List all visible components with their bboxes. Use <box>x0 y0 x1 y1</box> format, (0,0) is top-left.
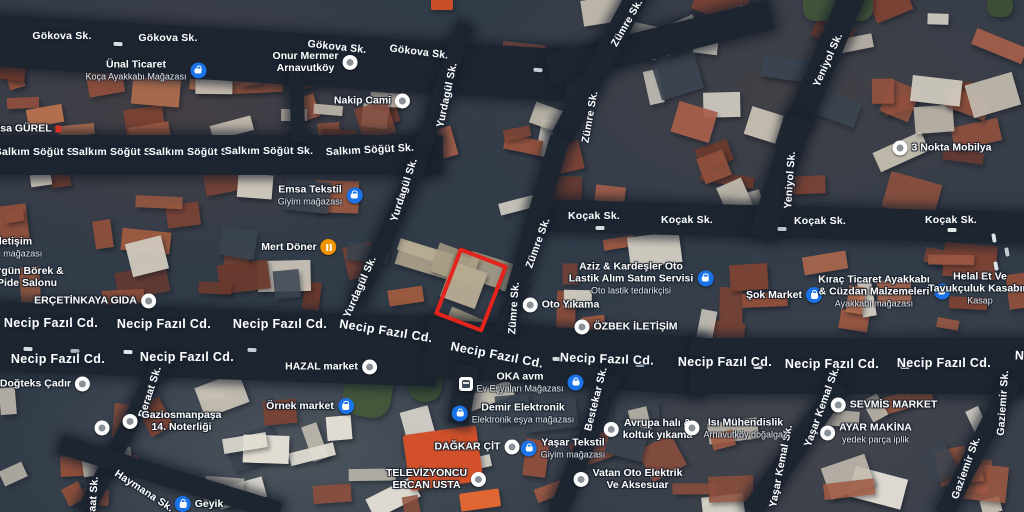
poi-text: Avrupa halı &koltuk yıkama <box>623 417 692 441</box>
engineering-icon <box>684 421 699 436</box>
poi-label[interactable]: Nakip Cami <box>334 94 410 109</box>
poi-text: AYAR MAKİNAyedek parça iplik <box>839 421 912 444</box>
poi-icon-glyph <box>145 298 152 305</box>
poi-category: Oto lastik tedarikçisi <box>591 286 671 296</box>
street-label: Necip Fazıl Cd. <box>117 317 211 331</box>
poi-name: Ve Aksesuar <box>606 479 668 491</box>
poi-label[interactable]: Mert Döner <box>261 239 336 255</box>
poi-name: Yaşar Tekstil <box>541 436 604 448</box>
roof-block <box>131 77 181 108</box>
street-label: Koçak Sk. <box>925 214 977 226</box>
car <box>23 347 32 351</box>
street-label: Necip Fazıl Cd. <box>233 317 327 331</box>
grocery-icon-glyph <box>366 364 373 371</box>
cleaning-icon <box>604 422 619 437</box>
notary-icon-glyph <box>127 418 134 425</box>
poi-name: Tavukçuluk Kasabım <box>928 283 1024 295</box>
poi-icon-glyph <box>79 381 86 388</box>
car <box>777 227 786 231</box>
poi-name: Ergün Börek & <box>0 265 64 277</box>
poi-label[interactable]: Doğteks Çadır <box>0 377 90 392</box>
poi-name: Şok Market <box>746 289 802 301</box>
car <box>113 42 122 46</box>
poi-name: Lastik Alım Satım Servisi <box>569 273 694 285</box>
poi-name: Oto Yıkama <box>542 299 600 311</box>
poi-name: Isı Mühendislik <box>708 416 783 428</box>
poi-name: OKA avm <box>497 370 544 382</box>
engineering-icon-glyph <box>688 425 695 432</box>
phone-shop-icon <box>575 320 590 335</box>
grocery-icon <box>362 360 377 375</box>
poi-label[interactable]: Örnek market <box>266 398 354 414</box>
shopping-bag-icon-glyph <box>702 276 709 282</box>
cart-icon <box>831 398 846 413</box>
roof-block <box>326 415 353 441</box>
poi-label[interactable]: OKA avmEv Eşyaları Mağazası <box>476 370 583 393</box>
bus-station-icon <box>459 377 473 391</box>
poi-label[interactable]: Demir ElektronikElektronik eşya mağazası <box>452 401 575 424</box>
poi-name: Vatan Oto Elektrik <box>593 467 683 479</box>
poi-icon <box>820 426 835 441</box>
street-label: Koçak Sk. <box>568 210 620 222</box>
street-label: Gökova Sk. <box>138 32 197 44</box>
roof-block <box>401 495 420 512</box>
poi-label[interactable]: Şok Market <box>746 287 822 303</box>
poi-name: TELEVİZYONCU <box>386 467 467 479</box>
roof-block <box>136 195 183 209</box>
poi-label[interactable]: Emsa TekstilGiyim mağazası <box>278 183 363 206</box>
poi-name: Arnavutköy <box>277 62 335 74</box>
poi-category: Giyim mağazası <box>541 450 606 460</box>
poi-label[interactable]: Aziz & Kardeşler OtoLastik Alım Satım Se… <box>569 260 714 295</box>
poi-name: Geyik <box>195 498 224 510</box>
poi-text: Yaşar TekstilGiyim mağazası <box>541 436 606 459</box>
cart-icon <box>338 398 354 414</box>
poi-category: Koça Ayakkabı Mağazası <box>86 72 187 82</box>
poi-name: İletişim <box>0 235 32 247</box>
poi-icon <box>95 421 110 436</box>
poi-text: İletişimonu mağazası <box>0 235 42 258</box>
poi-name: Kıraç Ticaret Ayakkabı <box>818 273 930 285</box>
poi-name: Demir Elektronik <box>481 401 564 413</box>
poi-label[interactable]: Oto Yıkama <box>523 298 600 313</box>
poi-text: Isa GÜREL <box>0 123 52 135</box>
poi-icon-glyph <box>508 444 515 451</box>
shopping-bag-icon <box>697 270 713 286</box>
shopping-bag-icon <box>452 405 468 421</box>
poi-text: ÖZBEK İLETİŞİM <box>594 321 678 333</box>
poi-label[interactable]: ÖZBEK İLETİŞİM <box>575 320 678 335</box>
bus-station-icon-glyph <box>462 380 470 388</box>
poi-name: Mert Döner <box>261 241 316 253</box>
poi-name: ERÇETİNKAYA GIDA <box>34 295 137 307</box>
cart-icon-glyph <box>835 402 842 409</box>
poi-name: koltuk yıkama <box>623 429 692 441</box>
car <box>247 348 256 352</box>
mosque-icon <box>395 94 410 109</box>
car-wash-icon-glyph <box>527 302 534 309</box>
mosque-icon-glyph <box>399 98 406 105</box>
street-label: Salkım Söğüt Sk. <box>72 146 160 158</box>
street-label: Necip Fazıl Cd. <box>11 352 105 366</box>
poi-label[interactable]: ERÇETİNKAYA GIDA <box>34 294 156 309</box>
poi-label[interactable] <box>95 421 110 436</box>
poi-label[interactable]: AYAR MAKİNAyedek parça iplik <box>820 421 912 444</box>
shopping-bag-icon-glyph <box>456 411 463 417</box>
poi-label[interactable]: Yaşar TekstilGiyim mağazası <box>521 436 606 459</box>
poi-label[interactable]: HAZAL market <box>285 360 377 375</box>
street-label: Koçak Sk. <box>661 214 713 226</box>
street-label: Salkım Söğüt Sk. <box>225 145 313 157</box>
roof-block <box>236 173 273 199</box>
poi-text: Kıraç Ticaret Ayakkabı& Cüzdan Malzemele… <box>818 273 930 308</box>
poi-text: Örnek market <box>266 400 334 412</box>
poi-text: Oto Yıkama <box>542 299 600 311</box>
poi-category: onu mağazası <box>0 249 42 259</box>
street-label: Necip Fazıl Cd. <box>4 316 98 330</box>
poi-category: Giyim mağazası <box>278 197 343 207</box>
poi-name: AYAR MAKİNA <box>839 421 912 433</box>
poi-icon <box>893 141 908 156</box>
poi-label[interactable]: Gaziosmanpaşa14. Noterliği <box>123 409 222 433</box>
poi-name: Emsa Tekstil <box>278 183 341 195</box>
poi-icon-glyph <box>99 425 106 432</box>
street-label: Necip Fazıl Cd. <box>140 350 234 364</box>
poi-name: Örnek market <box>266 400 334 412</box>
red-marker-icon <box>56 126 62 133</box>
roof-block <box>218 226 258 261</box>
poi-text: Emsa TekstilGiyim mağazası <box>278 183 343 206</box>
poi-text: DAĞKAR ÇİT <box>435 441 501 453</box>
restaurant-icon-glyph <box>326 244 328 251</box>
poi-category: Kasap <box>967 296 993 306</box>
poi-category: Ayakkabı mağazası <box>835 299 913 309</box>
street-label: Beraat Sk. <box>85 476 101 512</box>
poi-icon-glyph <box>897 145 904 152</box>
poi-name: Helal Et Ve <box>953 270 1007 282</box>
poi-text: Aziz & Kardeşler OtoLastik Alım Satım Se… <box>569 260 694 295</box>
poi-text: HAZAL market <box>285 361 358 373</box>
poi-label[interactable]: Avrupa halı &koltuk yıkama <box>604 417 692 441</box>
poi-label[interactable]: Ergün Börek &Pide Salonu <box>0 265 64 289</box>
poi-text: 3 Nokta Mobilya <box>912 142 992 154</box>
poi-text: Helal Et VeTavukçuluk KasabımKasap <box>928 270 1024 305</box>
poi-category: Ev Eşyaları Mağazası <box>476 384 563 394</box>
shopping-bag-icon <box>521 440 537 456</box>
shopping-bag-icon-glyph <box>572 380 579 386</box>
poi-name: ERCAN USTA <box>392 479 460 491</box>
poi-icon-glyph <box>346 59 353 66</box>
roof-block <box>7 97 39 109</box>
shopping-bag-icon-glyph <box>351 193 358 199</box>
poi-name: Ünal Ticaret <box>106 58 166 70</box>
phone-shop-icon-glyph <box>579 324 586 331</box>
poi-label[interactable]: DAĞKAR ÇİT <box>435 440 520 455</box>
cleaning-icon-glyph <box>608 426 615 433</box>
shopping-bag-icon-glyph <box>525 446 532 452</box>
street-label: Salkım Söğüt Sk. <box>0 146 83 158</box>
street-label: Gökova Sk. <box>32 30 91 42</box>
poi-text: SEVMİS MARKET <box>850 399 938 411</box>
poi-text: Onur MermerArnavutköy <box>273 50 339 74</box>
poi-name: Nakip Cami <box>334 95 391 107</box>
poi-text: Geyik <box>195 498 224 510</box>
shopping-bag-icon <box>346 187 362 203</box>
poi-icon-glyph <box>824 430 831 437</box>
auto-parts-icon <box>574 472 589 487</box>
poi-name: Gaziosmanpaşa <box>142 409 222 421</box>
poi-label[interactable]: 3 Nokta Mobilya <box>893 141 992 156</box>
car-wash-icon <box>523 298 538 313</box>
poi-text: Nakip Cami <box>334 95 391 107</box>
tree-canopy <box>987 0 1013 17</box>
shopping-bag-icon-glyph <box>195 68 202 74</box>
poi-name: Doğteks Çadır <box>0 378 71 390</box>
poi-name: Onur Mermer <box>273 50 339 62</box>
poi-label[interactable]: Ünal TicaretKoça Ayakkabı Mağazası <box>86 58 207 81</box>
roof-block <box>313 484 352 505</box>
roof-block <box>928 254 974 265</box>
poi-label[interactable]: Onur MermerArnavutköy <box>273 50 358 74</box>
shopping-bag-icon <box>568 374 584 390</box>
cart-icon-glyph <box>811 293 818 299</box>
poi-label[interactable]: TELEVİZYONCUERCAN USTA <box>386 467 486 491</box>
street-label: Koçak Sk. <box>794 215 846 227</box>
roof-block <box>92 220 114 250</box>
poi-name: SEVMİS MARKET <box>850 399 938 411</box>
building-roof <box>431 0 453 10</box>
poi-text: Isı MühendislikArnavutköy doğalgaz <box>703 416 787 439</box>
poi-text: ERÇETİNKAYA GIDA <box>34 295 137 307</box>
shopping-bag-icon-glyph <box>179 502 186 508</box>
car <box>533 68 542 73</box>
poi-icon <box>75 377 90 392</box>
car <box>947 228 956 232</box>
poi-text: Şok Market <box>746 289 802 301</box>
poi-category: Elektronik eşya mağazası <box>472 415 575 425</box>
poi-text: Ünal TicaretKoça Ayakkabı Mağazası <box>86 58 187 81</box>
street-label: Necip Fazıl Cd. <box>897 356 991 370</box>
poi-name: 3 Nokta Mobilya <box>912 142 992 154</box>
notary-icon <box>123 414 138 429</box>
auto-parts-icon-glyph <box>578 476 585 483</box>
roof-block <box>927 14 948 26</box>
poi-name: DAĞKAR ÇİT <box>435 441 501 453</box>
poi-name: & Cüzdan Malzemeleri <box>819 286 930 298</box>
repair-icon <box>471 472 486 487</box>
car <box>123 350 132 354</box>
poi-label[interactable]: Isa GÜREL <box>0 122 62 137</box>
poi-text: Mert Döner <box>261 241 316 253</box>
poi-label[interactable]: SEVMİS MARKET <box>831 398 938 413</box>
poi-label[interactable] <box>459 377 473 391</box>
poi-name: Avrupa halı & <box>624 417 691 429</box>
poi-label[interactable]: İletişimonu mağazası <box>0 235 42 258</box>
poi-text: Gaziosmanpaşa14. Noterliği <box>142 409 222 433</box>
shopping-bag-icon <box>190 62 206 78</box>
poi-text: Ergün Börek &Pide Salonu <box>0 265 64 289</box>
poi-text: OKA avmEv Eşyaları Mağazası <box>476 370 563 393</box>
poi-name: Aziz & Kardeşler Oto <box>579 260 683 272</box>
car <box>595 226 604 230</box>
poi-text: TELEVİZYONCUERCAN USTA <box>386 467 467 491</box>
poi-icon <box>342 55 357 70</box>
poi-name: ÖZBEK İLETİŞİM <box>594 321 678 333</box>
cart-icon-glyph <box>342 404 349 410</box>
restaurant-icon <box>321 239 337 255</box>
repair-icon-glyph <box>475 476 482 483</box>
poi-icon <box>504 440 519 455</box>
poi-category: Arnavutköy doğalgaz <box>703 430 787 440</box>
poi-text: Demir ElektronikElektronik eşya mağazası <box>472 401 575 424</box>
poi-label[interactable]: Vatan Oto ElektrikVe Aksesuar <box>574 467 683 491</box>
poi-text: Vatan Oto ElektrikVe Aksesuar <box>593 467 683 491</box>
poi-label[interactable]: Geyik <box>175 496 224 512</box>
poi-category: yedek parça iplik <box>842 435 909 445</box>
poi-label[interactable]: Isı MühendislikArnavutköy doğalgaz <box>684 416 787 439</box>
poi-name: HAZAL market <box>285 361 358 373</box>
roof-block <box>719 287 743 323</box>
poi-text: Doğteks Çadır <box>0 378 71 390</box>
roof-block <box>872 79 895 104</box>
street-label: Necip Fazıl Cd. <box>678 355 772 369</box>
roof-block <box>273 269 302 299</box>
poi-name: Pide Salonu <box>0 277 57 289</box>
satellite-map-canvas[interactable]: Gökova Sk.Gökova Sk.Gökova Sk.Gökova Sk.… <box>0 0 1024 512</box>
shopping-bag-icon <box>175 496 191 512</box>
roof-block <box>914 104 955 133</box>
roof-block <box>910 75 962 107</box>
poi-name: Isa GÜREL <box>0 123 52 135</box>
poi-icon <box>141 294 156 309</box>
poi-name: 14. Noterliği <box>151 421 211 433</box>
roof-block <box>198 282 231 295</box>
poi-label[interactable]: Helal Et VeTavukçuluk KasabımKasap <box>928 270 1024 305</box>
